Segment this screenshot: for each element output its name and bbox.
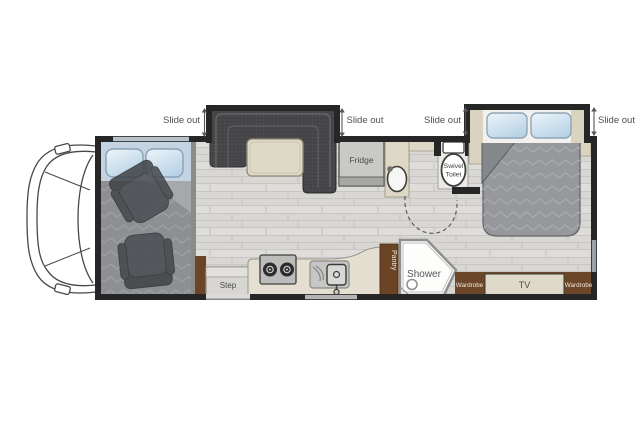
swivel-chair-lower (117, 231, 176, 289)
slide-out-label-bed-right: Slide out (598, 115, 635, 126)
slide-out-label-dinette-right: Slide out (347, 115, 384, 126)
bath-wall-stub (452, 187, 480, 194)
wall-bottom-left (95, 294, 206, 300)
entry-door-sill (206, 299, 250, 301)
wall-top-mid (338, 136, 468, 142)
slide-out-label-bed-left: Slide out (424, 115, 461, 126)
nightstand-left (469, 142, 483, 164)
tv-label: TV (519, 280, 531, 290)
wardrobe-right-label: Wardrobe (565, 282, 593, 289)
stove (260, 255, 296, 284)
window-bedroom (592, 240, 596, 272)
cabinet-strip (195, 256, 206, 295)
headboard-strip-left (470, 110, 483, 143)
floorplan-canvas: Slide out Slide out Slide out Slide out … (0, 0, 640, 427)
headboard-strip-right (571, 110, 584, 143)
wall-bottom-right (398, 294, 597, 300)
slide-out-label-dinette-left: Slide out (163, 115, 200, 126)
rv-floorplan: Slide out Slide out Slide out Slide out … (0, 0, 640, 427)
faucet-handle (334, 289, 339, 294)
entry-step-tread (206, 267, 250, 277)
slide-out-arrow-dinette-right (339, 108, 345, 137)
pantry-label: Pantry (390, 250, 397, 271)
shower-label: Shower (407, 269, 442, 280)
cab-over-bunk (100, 141, 196, 296)
wardrobe-left-label: Wardrobe (456, 282, 484, 289)
cab-front (27, 143, 96, 295)
wall-right (591, 136, 597, 300)
swivel-toilet-label-line1: Swivel (444, 163, 464, 170)
wall-left (95, 136, 101, 300)
toilet-bowl (442, 154, 466, 186)
shower-drain (407, 280, 417, 290)
bed-slideout (464, 104, 590, 143)
window-front-bunk (113, 137, 189, 141)
fridge-label: Fridge (349, 155, 373, 165)
bathroom-sink (385, 140, 409, 197)
toilet-tank (443, 142, 464, 153)
dinette-table (247, 139, 303, 176)
sink-faucet (387, 166, 393, 172)
window-kitchen (305, 295, 357, 299)
slide-out-arrow-bed-right (591, 107, 597, 136)
swivel-toilet-label-line2: Toilet (446, 172, 462, 179)
bed-pillow-right (531, 113, 571, 138)
step-label: Step (220, 281, 237, 290)
bed-pillow-left (487, 113, 527, 138)
